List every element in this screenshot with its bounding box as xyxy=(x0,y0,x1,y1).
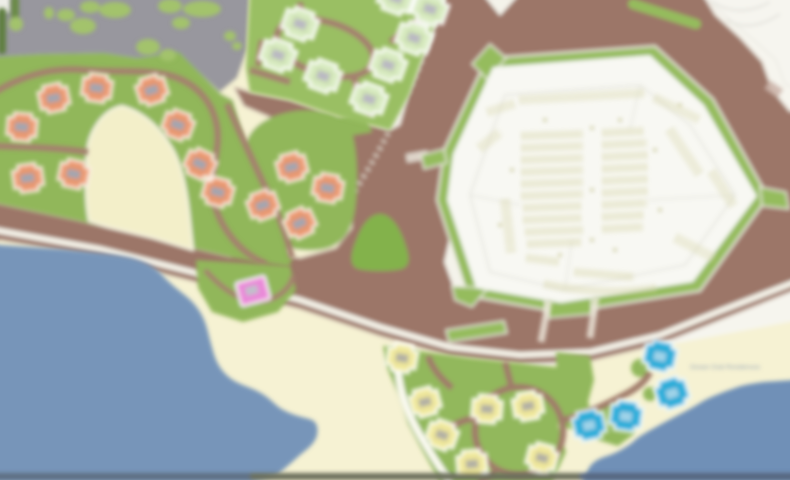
svg-text:Ocean Club Residences: Ocean Club Residences xyxy=(690,364,761,371)
